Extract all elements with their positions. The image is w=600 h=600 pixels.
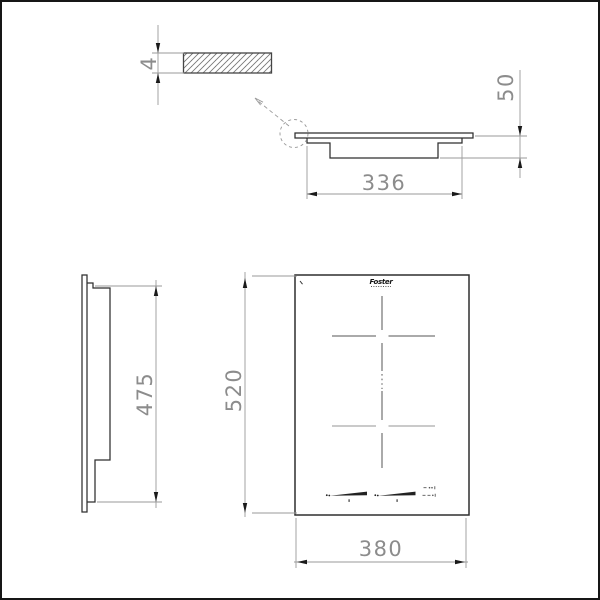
dimension-overall-depth: 520 bbox=[222, 272, 297, 517]
dimension-label-glass-thickness: 4 bbox=[137, 56, 161, 71]
dimension-arrow-icon bbox=[307, 192, 317, 196]
dimension-lines bbox=[245, 272, 297, 517]
glass-detail-view: 4 bbox=[137, 25, 289, 126]
dimension-arrow-icon bbox=[156, 73, 160, 83]
control-dots-icon bbox=[326, 494, 328, 496]
brand-logo: Foster bbox=[370, 278, 394, 287]
dimension-arrow-icon bbox=[154, 492, 158, 502]
dimension-arrow-icon bbox=[297, 560, 307, 564]
dimension-arrow-icon bbox=[154, 286, 158, 296]
glass-section-hatched-rect bbox=[184, 53, 272, 73]
profile-body-outline bbox=[87, 283, 110, 502]
hob-body-outline bbox=[307, 139, 462, 159]
dimension-label-cutout-width: 336 bbox=[362, 171, 407, 195]
top-view: Foster bbox=[222, 272, 469, 568]
brand-logo-text: Foster bbox=[370, 278, 394, 286]
side-profile-view: 475 bbox=[82, 275, 162, 512]
control-dot bbox=[431, 487, 433, 489]
detail-leader-line bbox=[258, 101, 289, 126]
side-elevation-view: 336 50 bbox=[280, 70, 527, 199]
dimension-label-built-in-depth: 50 bbox=[494, 72, 518, 102]
dimension-overall-width: 380 bbox=[294, 518, 468, 568]
detail-leader bbox=[255, 98, 289, 126]
control-dots-icon bbox=[377, 495, 379, 497]
dimension-arrow-icon bbox=[243, 503, 247, 513]
dimension-arrow-icon bbox=[455, 560, 465, 564]
technical-drawing-canvas: 4 336 50 bbox=[0, 0, 600, 600]
control-dot bbox=[429, 487, 431, 489]
dimension-label-body-height: 475 bbox=[133, 372, 157, 417]
control-dots-icon bbox=[374, 494, 376, 496]
drawing-svg: 4 336 50 bbox=[2, 2, 598, 598]
dimension-arrow-icon bbox=[452, 192, 462, 196]
dimension-body-height: 475 bbox=[95, 280, 162, 508]
dimension-glass-thickness: 4 bbox=[137, 25, 184, 105]
control-dots-icon bbox=[328, 495, 330, 497]
dimension-arrow-icon bbox=[518, 158, 522, 168]
slider-tick bbox=[348, 499, 349, 502]
slider-tick bbox=[396, 499, 397, 502]
dimension-label-overall-depth: 520 bbox=[222, 368, 246, 413]
glass-profile-outline bbox=[82, 275, 87, 512]
glass-top-outline bbox=[295, 133, 473, 138]
control-dot bbox=[432, 495, 434, 497]
dimension-arrow-icon bbox=[518, 126, 522, 136]
dimension-built-in-depth: 50 bbox=[440, 70, 527, 178]
dimension-arrow-icon bbox=[156, 43, 160, 53]
dimension-arrow-icon bbox=[243, 278, 247, 288]
dimension-label-overall-width: 380 bbox=[359, 537, 404, 561]
